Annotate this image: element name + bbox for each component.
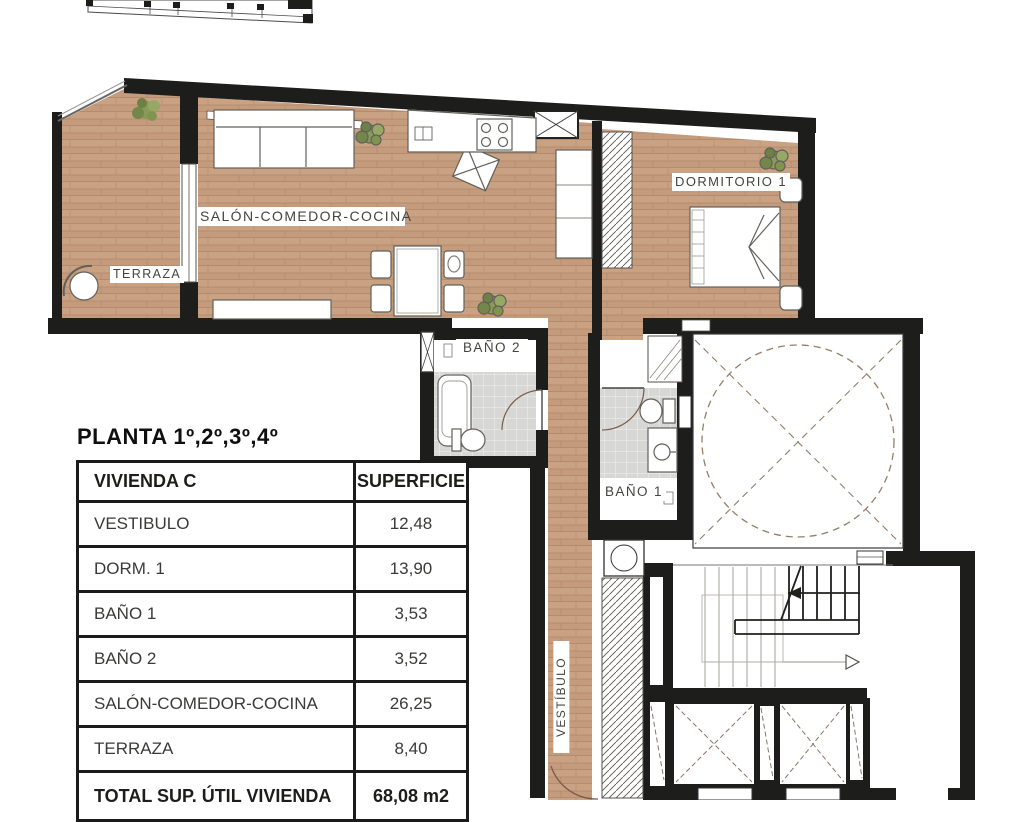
wall-bano1-bottom [588,520,693,540]
wardrobe [602,578,643,798]
vanity [648,428,677,472]
sideboard [213,300,331,319]
toilet-bowl [461,429,485,451]
kitchen-counter-side [556,150,592,258]
wall-bottom [48,318,452,334]
connector-floor [602,318,643,340]
chair [444,251,464,278]
terraza-chair [70,272,98,300]
patio [693,334,903,548]
chair [444,285,464,312]
wall-bano1-left [588,333,600,537]
toilet-tank [663,399,675,423]
sofa [214,110,354,168]
table-row: DORM. 1 13,90 [78,547,468,592]
wall-bano2-right-up [536,328,548,390]
wall-terraza-left [52,112,62,320]
page-title: PLANTA 1º,2º,3º,4º [77,424,278,450]
wall-divider-top [180,92,198,164]
radiator-icon [444,344,452,357]
areas-table: VIVIENDA C SUPERFICIE VESTIBULO 12,48 DO… [76,460,469,822]
bano2-label: BAÑO 2 [456,339,528,357]
vestibulo-label: VESTÍBULO [553,641,569,753]
table-row: BAÑO 2 3,52 [78,637,468,682]
header-vivienda: VIVIENDA C [78,462,355,502]
terraza-label: TERRAZA [110,266,184,283]
table-row: SALÓN-COMEDOR-COCINA 26,25 [78,682,468,727]
bed [690,207,780,287]
toilet-bowl [640,399,662,423]
floor-plan-page: SALÓN-COMEDOR-COCINA TERRAZA DORMITORIO … [0,0,1024,800]
salon-label: SALÓN-COMEDOR-COCINA [197,207,405,226]
duct-bano1 [679,396,691,428]
table-row: VESTIBULO 12,48 [78,502,468,547]
stair-wall-slot [650,577,663,685]
dormitorio-label: DORMITORIO 1 [672,173,790,191]
closet [602,132,632,268]
toilet-tank [452,429,461,451]
bano2-room [434,340,542,456]
stair-start-mark [846,655,859,669]
kitchen-counter [408,110,536,152]
mini-site-plan [86,0,313,23]
header-superficie: SUPERFICIE [355,462,468,502]
elevator-cab [674,704,754,784]
table-row: TERRAZA 8,40 [78,727,468,772]
chair [371,285,391,312]
wall-divider-bottom [180,282,198,320]
bano1-label: BAÑO 1 [602,483,666,501]
wall-kitchen [592,121,602,340]
dining-table [394,246,441,316]
chair [371,251,391,278]
lintel [857,551,883,564]
table-row: BAÑO 1 3,53 [78,592,468,637]
nightstand [780,286,802,310]
table-total-row: TOTAL SUP. ÚTIL VIVIENDA 68,08 m2 [78,772,468,821]
wall-hall-left [530,468,545,798]
staircase [673,565,893,687]
wall-patio-right [903,322,920,552]
dorm-wall-insert [682,320,710,331]
table-header-row: VIVIENDA C SUPERFICIE [78,462,468,502]
wall-right-lower [960,563,975,793]
